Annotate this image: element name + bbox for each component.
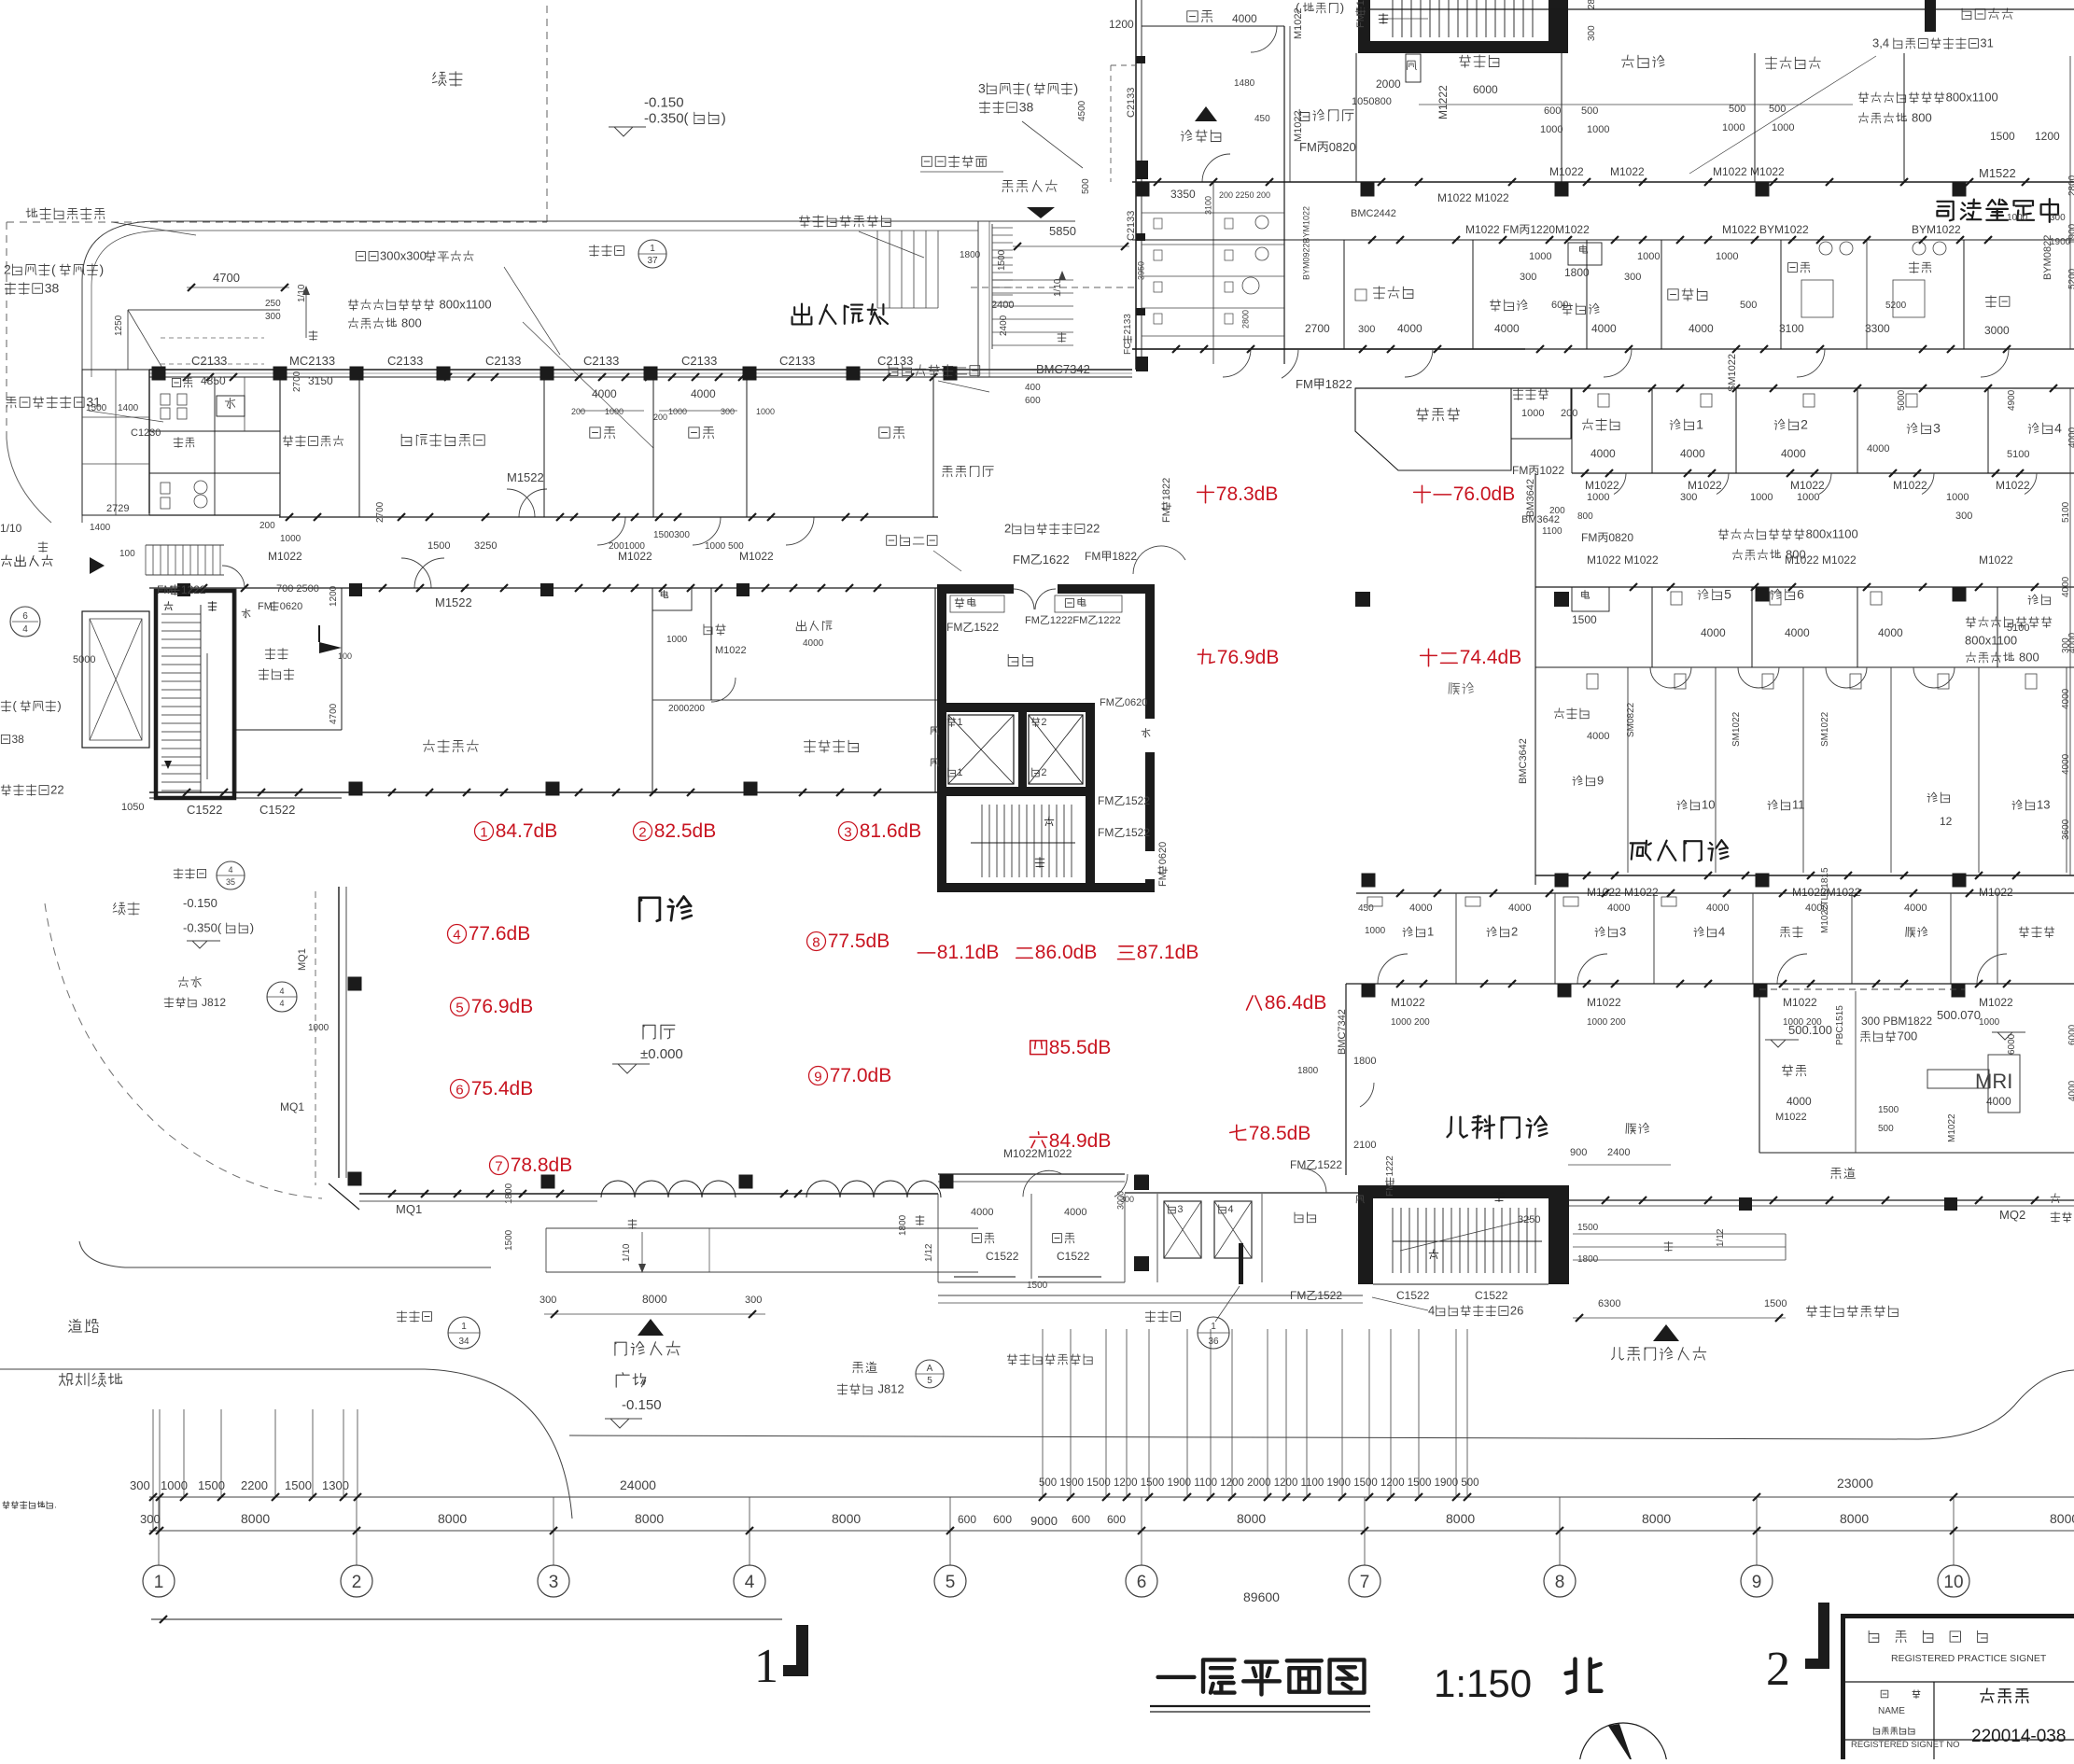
svg-text:(: (	[13, 699, 18, 713]
svg-text:1000: 1000	[1365, 926, 1386, 936]
svg-text:J812: J812	[202, 996, 226, 1009]
svg-text:3950: 3950	[1136, 261, 1145, 280]
svg-text:1000: 1000	[1637, 251, 1660, 262]
svg-text:1/10: 1/10	[622, 1243, 632, 1262]
svg-text:1000: 1000	[1587, 124, 1609, 135]
svg-text:0620: 0620	[280, 601, 302, 612]
svg-text:1/12: 1/12	[1716, 1228, 1726, 1247]
svg-text:C2133: C2133	[877, 354, 913, 368]
svg-text:300: 300	[540, 1295, 556, 1306]
svg-text:1800: 1800	[1353, 1056, 1376, 1067]
svg-text:1500: 1500	[1764, 1298, 1787, 1309]
svg-text:4500: 4500	[1077, 100, 1087, 121]
svg-text:): )	[100, 262, 105, 277]
svg-text:500.070: 500.070	[1937, 1008, 1981, 1022]
svg-text:8000: 8000	[438, 1511, 467, 1526]
svg-text:C2133: C2133	[387, 354, 423, 368]
svg-text:3150: 3150	[308, 374, 333, 387]
svg-text:MQ1: MQ1	[396, 1202, 422, 1216]
svg-text:1000: 1000	[1750, 492, 1773, 503]
svg-text:1500: 1500	[504, 1229, 514, 1251]
svg-text:78.5dB: 78.5dB	[1249, 1123, 1311, 1144]
svg-text:1800: 1800	[1577, 1254, 1599, 1265]
svg-text:C2133: C2133	[681, 354, 717, 368]
svg-text:(: (	[1026, 81, 1030, 96]
svg-text:SM1022: SM1022	[1820, 711, 1830, 747]
svg-text:280: 280	[1587, 0, 1597, 9]
svg-text:1: 1	[461, 1322, 467, 1332]
svg-text:1000: 1000	[668, 407, 687, 416]
svg-text:8000: 8000	[2050, 1511, 2074, 1526]
svg-text:4000: 4000	[803, 638, 824, 649]
svg-text:C2133: C2133	[779, 354, 815, 368]
svg-text:100: 100	[338, 651, 352, 661]
svg-text:8000: 8000	[1237, 1511, 1266, 1526]
svg-text:24000: 24000	[620, 1477, 656, 1492]
svg-text:1/10: 1/10	[1053, 278, 1063, 297]
svg-text:300 PBM1822: 300 PBM1822	[1861, 1015, 1932, 1028]
svg-text:1000: 1000	[666, 635, 688, 645]
svg-text:1100: 1100	[1542, 526, 1563, 537]
svg-text:6: 6	[22, 611, 28, 622]
svg-text:M1022 M1022: M1022 M1022	[1437, 191, 1509, 204]
svg-text:300: 300	[1680, 492, 1697, 503]
svg-text:1200: 1200	[2035, 130, 2060, 143]
svg-text:1800: 1800	[1564, 266, 1590, 279]
svg-text:800: 800	[401, 316, 422, 330]
svg-text:500.100: 500.100	[1788, 1023, 1832, 1037]
svg-text:M1022: M1022	[1688, 479, 1722, 492]
svg-text:86.4dB: 86.4dB	[1265, 992, 1327, 1014]
svg-text:2400: 2400	[1607, 1147, 1630, 1158]
svg-text:M1022: M1022	[1979, 553, 2013, 567]
svg-text:500: 500	[1878, 1124, 1894, 1134]
svg-text:10: 10	[1702, 798, 1715, 812]
svg-text:500: 500	[1769, 104, 1786, 115]
svg-text:1000: 1000	[161, 1478, 188, 1492]
svg-text:M1022: M1022	[1783, 996, 1817, 1009]
svg-text:35: 35	[226, 877, 235, 887]
svg-text:1480: 1480	[1234, 78, 1255, 89]
svg-text:4000: 4000	[1587, 731, 1609, 742]
svg-text:-0.350(: -0.350(	[183, 921, 222, 935]
svg-text:8000: 8000	[1840, 1511, 1869, 1526]
svg-text:1000: 1000	[308, 1023, 329, 1033]
svg-text:8000: 8000	[832, 1511, 861, 1526]
svg-text:-0.350(: -0.350(	[644, 110, 689, 126]
svg-text:1/10: 1/10	[297, 284, 307, 302]
svg-text:85.5dB: 85.5dB	[1049, 1037, 1112, 1058]
svg-text:M1022: M1022	[1979, 886, 2013, 899]
svg-text:800x1100: 800x1100	[1806, 527, 1858, 541]
svg-text:600: 600	[1107, 1513, 1126, 1526]
svg-text:): )	[1074, 81, 1079, 96]
svg-text:M1022: M1022	[268, 550, 302, 563]
svg-text:1500: 1500	[427, 540, 450, 552]
svg-text:13: 13	[2037, 798, 2050, 812]
svg-text:REGISTERED SIGNET NO: REGISTERED SIGNET NO	[1851, 1740, 1959, 1750]
svg-text:TLC1815: TLC1815	[1820, 867, 1830, 906]
svg-text:200: 200	[259, 521, 275, 531]
svg-text:1000: 1000	[1529, 251, 1551, 262]
svg-text:4: 4	[2054, 421, 2062, 436]
svg-text:M1022: M1022	[618, 550, 652, 563]
svg-text:200 2250 200: 200 2250 200	[1219, 190, 1270, 200]
svg-text:M1022: M1022	[1947, 1113, 1957, 1142]
svg-text:3250: 3250	[474, 540, 497, 552]
svg-text:1200: 1200	[329, 585, 339, 607]
svg-text:M1022: M1022	[1775, 1112, 1807, 1123]
svg-text:1000: 1000	[280, 534, 301, 544]
svg-text:1: 1	[957, 767, 962, 778]
svg-text:C1522: C1522	[986, 1250, 1019, 1263]
svg-text:5: 5	[455, 1000, 463, 1015]
svg-text:M1022: M1022	[715, 645, 747, 656]
svg-text:450: 450	[1358, 903, 1374, 914]
svg-text:1222: 1222	[1385, 1155, 1395, 1177]
svg-text:-0.150: -0.150	[622, 1397, 662, 1413]
svg-text:SM1022: SM1022	[1727, 354, 1738, 392]
svg-text:2000200: 2000200	[668, 704, 705, 714]
svg-text:FM乙1222FM乙1222: FM乙1222FM乙1222	[1025, 614, 1121, 626]
svg-text:(: (	[1296, 1, 1300, 15]
svg-text:5850: 5850	[1049, 224, 1076, 238]
svg-text:700: 700	[1898, 1029, 1918, 1043]
svg-text:M1022 M1022: M1022 M1022	[1587, 553, 1659, 567]
svg-text:2133: 2133	[1123, 314, 1133, 335]
svg-text:C2133: C2133	[583, 354, 619, 368]
svg-text:300: 300	[1955, 511, 1972, 522]
svg-text:REGISTERED PRACTICE SIGNET: REGISTERED PRACTICE SIGNET	[1891, 1653, 2047, 1664]
svg-text:6: 6	[1137, 1573, 1147, 1592]
svg-text:4000: 4000	[1689, 322, 1714, 335]
svg-text:6000: 6000	[2007, 1033, 2017, 1055]
svg-text:3: 3	[549, 1573, 559, 1592]
svg-text:4000: 4000	[1867, 443, 1889, 455]
svg-text:FM乙1522: FM乙1522	[1098, 826, 1150, 839]
svg-text:2: 2	[1511, 925, 1518, 939]
svg-text:8000: 8000	[635, 1511, 664, 1526]
svg-text:): )	[57, 699, 61, 713]
svg-text:1: 1	[754, 1640, 778, 1693]
svg-text:74.4dB: 74.4dB	[1460, 647, 1522, 668]
svg-text:2000: 2000	[1376, 77, 1401, 91]
svg-text:1050: 1050	[121, 802, 144, 813]
svg-text:3300: 3300	[1865, 322, 1890, 335]
svg-text:6000: 6000	[1473, 83, 1498, 96]
svg-text:4000: 4000	[2067, 427, 2074, 448]
svg-text:300: 300	[1120, 1195, 1134, 1204]
svg-text:M1022: M1022	[1549, 165, 1584, 178]
svg-text:300: 300	[1624, 272, 1641, 283]
svg-text:22: 22	[1086, 522, 1100, 536]
svg-text:4: 4	[22, 624, 28, 635]
svg-text:1000: 1000	[756, 407, 775, 416]
svg-text:1000: 1000	[1797, 492, 1819, 503]
svg-text:M1022M1022: M1022M1022	[1003, 1147, 1072, 1160]
svg-text:4000: 4000	[1397, 322, 1422, 335]
svg-text:4000: 4000	[1409, 903, 1432, 914]
svg-text:BMC7342: BMC7342	[1036, 362, 1090, 376]
svg-text:M1022 FM丙1220M1022: M1022 FM丙1220M1022	[1465, 223, 1590, 236]
svg-text:3100: 3100	[1203, 196, 1212, 215]
svg-text:-0.150: -0.150	[183, 896, 217, 910]
svg-text:5100: 5100	[2007, 449, 2029, 460]
svg-text:4: 4	[1718, 925, 1725, 939]
svg-text:1000: 1000	[1946, 492, 1969, 503]
svg-text:BMC2442: BMC2442	[1351, 208, 1396, 219]
svg-text:1000: 1000	[2007, 213, 2028, 223]
svg-text:76.0dB: 76.0dB	[1453, 483, 1516, 505]
svg-text:77.5dB: 77.5dB	[828, 931, 890, 952]
svg-text:PBC1515: PBC1515	[1835, 1005, 1845, 1045]
svg-text:4000: 4000	[1785, 626, 1810, 639]
svg-text:1000: 1000	[1716, 251, 1738, 262]
svg-text:M1022: M1022	[739, 550, 774, 563]
svg-text:3: 3	[1619, 925, 1626, 939]
svg-text:3250: 3250	[1518, 1214, 1540, 1225]
svg-text:4000: 4000	[1494, 322, 1520, 335]
svg-text:6000: 6000	[2067, 1024, 2074, 1045]
svg-text:36: 36	[1208, 1337, 1219, 1347]
svg-text:3000: 3000	[1984, 324, 2010, 337]
svg-text:BMC3642: BMC3642	[1518, 738, 1529, 784]
svg-text:FM丙0820: FM丙0820	[1299, 140, 1356, 154]
svg-text:1000: 1000	[1540, 124, 1563, 135]
svg-text:1050800: 1050800	[1352, 96, 1392, 107]
svg-text:77.0dB: 77.0dB	[830, 1065, 892, 1086]
svg-text:3: 3	[1177, 1204, 1183, 1215]
svg-text:3350: 3350	[1170, 188, 1196, 201]
svg-text:31: 31	[1980, 36, 1993, 50]
svg-text:4000: 4000	[971, 1207, 993, 1218]
svg-text:6: 6	[455, 1082, 463, 1098]
svg-text:11: 11	[1792, 798, 1805, 812]
svg-text:300: 300	[721, 407, 735, 416]
svg-text:4000: 4000	[1591, 447, 1616, 460]
svg-text:1800: 1800	[898, 1214, 908, 1236]
svg-text:6: 6	[1797, 587, 1804, 602]
svg-text:1000: 1000	[1979, 1017, 2000, 1028]
svg-text:MC2133: MC2133	[289, 354, 335, 368]
svg-text:37: 37	[647, 256, 658, 266]
svg-text:BYM1022: BYM1022	[1912, 223, 1961, 236]
svg-text:500: 500	[1081, 178, 1091, 194]
svg-text:): )	[250, 921, 254, 935]
svg-text:M1522: M1522	[1979, 166, 2016, 180]
svg-text:500: 500	[1740, 300, 1757, 311]
svg-text:2: 2	[1766, 1643, 1790, 1696]
svg-text:3: 3	[978, 81, 986, 96]
svg-text:2400: 2400	[999, 315, 1009, 336]
svg-text:M1022: M1022	[1979, 996, 2013, 1009]
svg-text:±0.000: ±0.000	[640, 1046, 683, 1062]
svg-text:FC: FC	[1123, 343, 1133, 355]
svg-text:1250: 1250	[114, 315, 124, 336]
svg-text:FM: FM	[157, 583, 173, 596]
svg-text:M1022: M1022	[1790, 479, 1825, 492]
svg-text:300: 300	[1587, 25, 1597, 41]
svg-text:300: 300	[1520, 272, 1536, 283]
svg-text:4: 4	[745, 1573, 755, 1592]
svg-text:M1222: M1222	[1436, 85, 1450, 119]
svg-text:300: 300	[265, 312, 281, 322]
svg-text:2: 2	[352, 1573, 362, 1592]
svg-text:1: 1	[480, 824, 487, 840]
svg-text:800: 800	[1577, 511, 1593, 522]
svg-text:MRI: MRI	[1975, 1070, 2012, 1093]
svg-text:4000: 4000	[1781, 447, 1806, 460]
svg-text:FM丙0820: FM丙0820	[1581, 531, 1633, 544]
svg-text:): )	[722, 110, 726, 126]
svg-text:1: 1	[1427, 925, 1434, 939]
svg-text:6300: 6300	[1598, 1298, 1620, 1309]
svg-text:1: 1	[1211, 1322, 1216, 1332]
svg-text:MQ1: MQ1	[297, 948, 308, 971]
svg-text:2: 2	[638, 824, 646, 840]
svg-text:M1022 M1022: M1022 M1022	[1713, 165, 1785, 178]
svg-text:2729: 2729	[106, 503, 129, 514]
svg-text:4000: 4000	[691, 387, 716, 400]
svg-text:1500: 1500	[1577, 1223, 1599, 1233]
svg-text:MQ1: MQ1	[280, 1100, 304, 1113]
svg-text:12: 12	[1355, 0, 1366, 6]
svg-text:M1022: M1022	[1893, 479, 1927, 492]
svg-text:250: 250	[265, 299, 281, 309]
svg-text:3: 3	[844, 824, 851, 840]
svg-text:38: 38	[12, 733, 25, 746]
svg-text:5000: 5000	[1897, 389, 1907, 411]
svg-text:600: 600	[993, 1513, 1012, 1526]
svg-text:5100: 5100	[2007, 623, 2029, 634]
svg-text:5200: 5200	[2067, 268, 2074, 289]
svg-text:BMC7342: BMC7342	[1337, 1009, 1348, 1055]
svg-text:450: 450	[1254, 114, 1270, 124]
svg-text:9: 9	[814, 1069, 821, 1085]
svg-text:4850: 4850	[201, 374, 226, 387]
svg-text:2800: 2800	[1240, 310, 1250, 329]
svg-text:1900: 1900	[2067, 223, 2074, 245]
svg-text:2: 2	[1801, 417, 1808, 432]
svg-text:4000: 4000	[1508, 903, 1531, 914]
svg-text:2400: 2400	[991, 300, 1014, 311]
svg-text:M1022: M1022	[1820, 904, 1830, 933]
svg-text:FM甲1822: FM甲1822	[1296, 377, 1352, 391]
svg-text:4000: 4000	[592, 387, 617, 400]
svg-text:84.7dB: 84.7dB	[496, 820, 558, 842]
svg-text:1222: 1222	[181, 583, 206, 596]
svg-text:2800: 2800	[2067, 175, 2074, 196]
svg-text:76.9dB: 76.9dB	[471, 996, 534, 1017]
svg-text:.: .	[54, 1500, 57, 1509]
svg-text:4000: 4000	[1607, 903, 1630, 914]
svg-text:3,4: 3,4	[1872, 36, 1889, 50]
svg-text:4900: 4900	[2007, 389, 2017, 411]
svg-text:C1230: C1230	[131, 427, 161, 439]
svg-text:26: 26	[1510, 1304, 1523, 1318]
svg-text:75.4dB: 75.4dB	[471, 1078, 534, 1099]
svg-text:5: 5	[927, 1376, 932, 1386]
svg-text:2100: 2100	[1353, 1140, 1376, 1151]
svg-text:M1522: M1522	[507, 470, 544, 484]
svg-text:1500: 1500	[285, 1478, 312, 1492]
svg-text:400: 400	[1025, 383, 1041, 393]
svg-text:77.6dB: 77.6dB	[469, 923, 531, 945]
svg-text:2: 2	[1041, 717, 1046, 728]
svg-text:5000: 5000	[73, 654, 95, 665]
svg-text:1400: 1400	[118, 403, 139, 413]
svg-text:1500: 1500	[1990, 130, 2015, 143]
svg-text:1000: 1000	[1587, 492, 1609, 503]
svg-text:800: 800	[1912, 111, 1932, 125]
svg-text:1500300: 1500300	[653, 530, 690, 540]
svg-text:300x300: 300x300	[380, 249, 427, 263]
svg-text:NAME: NAME	[1878, 1706, 1905, 1716]
svg-text:76.9dB: 76.9dB	[1217, 647, 1280, 668]
svg-text:4700: 4700	[213, 271, 240, 285]
svg-text:7: 7	[495, 1158, 502, 1174]
svg-text:8000: 8000	[642, 1293, 667, 1306]
svg-text:300: 300	[140, 1512, 161, 1526]
svg-text:800x1100: 800x1100	[1946, 91, 1998, 105]
svg-text:1000: 1000	[1722, 122, 1745, 133]
svg-text:200: 200	[1549, 506, 1565, 516]
svg-text:FM乙1522: FM乙1522	[1098, 794, 1150, 807]
svg-text:J812: J812	[878, 1382, 904, 1396]
svg-text:C2133: C2133	[1126, 88, 1137, 118]
svg-text:7: 7	[1360, 1573, 1370, 1592]
svg-text:4: 4	[1227, 1204, 1233, 1215]
svg-text:C1522: C1522	[1057, 1250, 1090, 1263]
svg-text:C2133: C2133	[191, 354, 227, 368]
svg-text:10: 10	[1943, 1573, 1963, 1592]
svg-text:FM乙0620: FM乙0620	[1100, 696, 1147, 708]
svg-text:M1022: M1022	[1610, 165, 1645, 178]
svg-text:9000: 9000	[1030, 1514, 1058, 1528]
svg-text:1800: 1800	[960, 250, 981, 260]
svg-text:200: 200	[571, 407, 585, 416]
svg-text:1/10: 1/10	[0, 522, 22, 535]
svg-text:1300: 1300	[322, 1478, 349, 1492]
svg-text:4000: 4000	[1064, 1207, 1086, 1218]
svg-text:100: 100	[119, 549, 135, 559]
svg-text:1800: 1800	[504, 1183, 514, 1204]
svg-text:300: 300	[130, 1478, 150, 1492]
svg-text:81.6dB: 81.6dB	[860, 820, 922, 842]
svg-text:89600: 89600	[1243, 1589, 1280, 1604]
svg-text:FM: FM	[1157, 872, 1169, 887]
svg-text:1200: 1200	[1109, 18, 1134, 31]
svg-text:2: 2	[4, 262, 11, 277]
svg-text:4000: 4000	[1232, 12, 1257, 25]
svg-text:4000: 4000	[1701, 626, 1726, 639]
svg-text:4000: 4000	[1706, 903, 1729, 914]
svg-text:8000: 8000	[1642, 1511, 1671, 1526]
svg-text:MQ2: MQ2	[1999, 1208, 2025, 1222]
svg-text:1000: 1000	[1772, 122, 1794, 133]
svg-text:3100: 3100	[1779, 322, 1804, 335]
svg-text:1500: 1500	[198, 1478, 225, 1492]
svg-text:2700: 2700	[1305, 322, 1330, 335]
svg-text:800: 800	[2019, 651, 2039, 665]
svg-text:4000: 4000	[1878, 626, 1903, 639]
svg-text:8000: 8000	[241, 1511, 270, 1526]
svg-text:9: 9	[1597, 774, 1604, 788]
svg-text:600: 600	[1544, 105, 1561, 117]
svg-text:M1522: M1522	[435, 595, 472, 609]
svg-text:2700: 2700	[292, 371, 302, 392]
svg-text:FM乙1522: FM乙1522	[1290, 1158, 1342, 1171]
